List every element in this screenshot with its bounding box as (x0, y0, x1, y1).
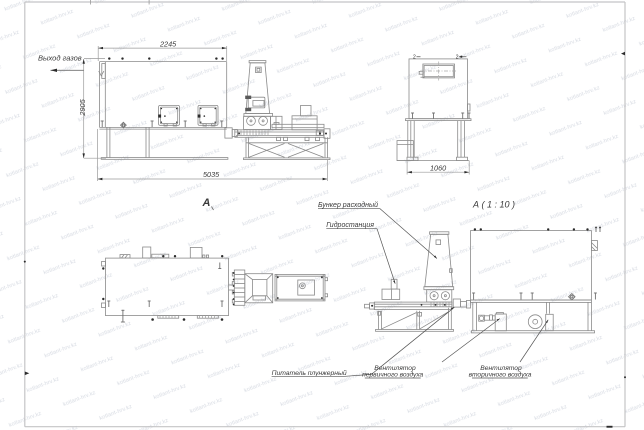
svg-text:2245: 2245 (159, 40, 177, 49)
svg-text:А ( 1 : 10 ): А ( 1 : 10 ) (472, 200, 515, 210)
svg-text:Гидростанция: Гидростанция (326, 221, 374, 229)
svg-text:Питатель плунжерный: Питатель плунжерный (272, 369, 347, 377)
svg-text:Бункер расходный: Бункер расходный (318, 201, 378, 209)
svg-text:2905: 2905 (78, 98, 87, 116)
svg-text:вторичного воздуха: вторичного воздуха (469, 371, 532, 379)
svg-text:Выход газов: Выход газов (38, 54, 82, 63)
svg-text:1060: 1060 (430, 164, 446, 173)
svg-text:первичного воздуха: первичного воздуха (362, 371, 423, 379)
svg-text:А: А (202, 197, 211, 209)
svg-text:2: 2 (413, 55, 416, 61)
svg-text:5035: 5035 (203, 170, 220, 179)
svg-text:2: 2 (456, 55, 459, 61)
